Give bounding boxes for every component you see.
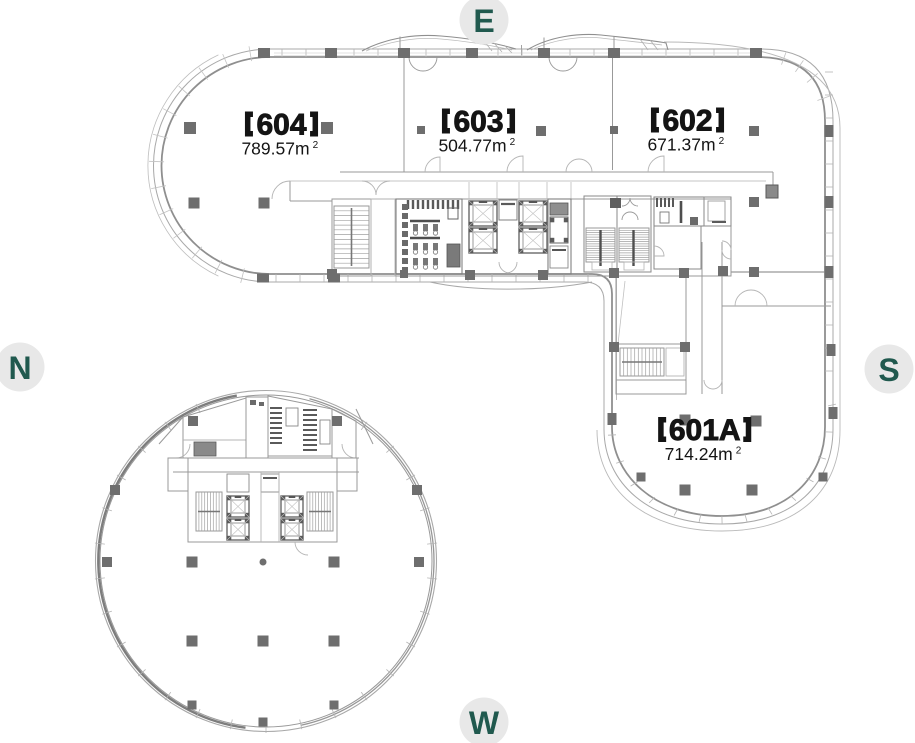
svg-text:2: 2 [510,137,516,148]
svg-text:2: 2 [313,140,319,151]
svg-text:2: 2 [719,136,725,147]
svg-text:603: 603 [453,106,503,139]
svg-text:2: 2 [736,446,742,457]
svg-text:S: S [878,352,899,388]
svg-text:504.77m: 504.77m [438,136,506,156]
svg-text:714.24m: 714.24m [665,444,733,464]
svg-text:671.37m: 671.37m [647,135,715,155]
svg-text:602: 602 [662,105,712,138]
svg-text:N: N [8,350,31,386]
svg-text:601A: 601A [669,414,741,447]
svg-text:W: W [469,705,500,741]
svg-text:789.57m: 789.57m [241,139,309,159]
svg-text:E: E [473,3,494,39]
svg-text:604: 604 [256,109,306,142]
